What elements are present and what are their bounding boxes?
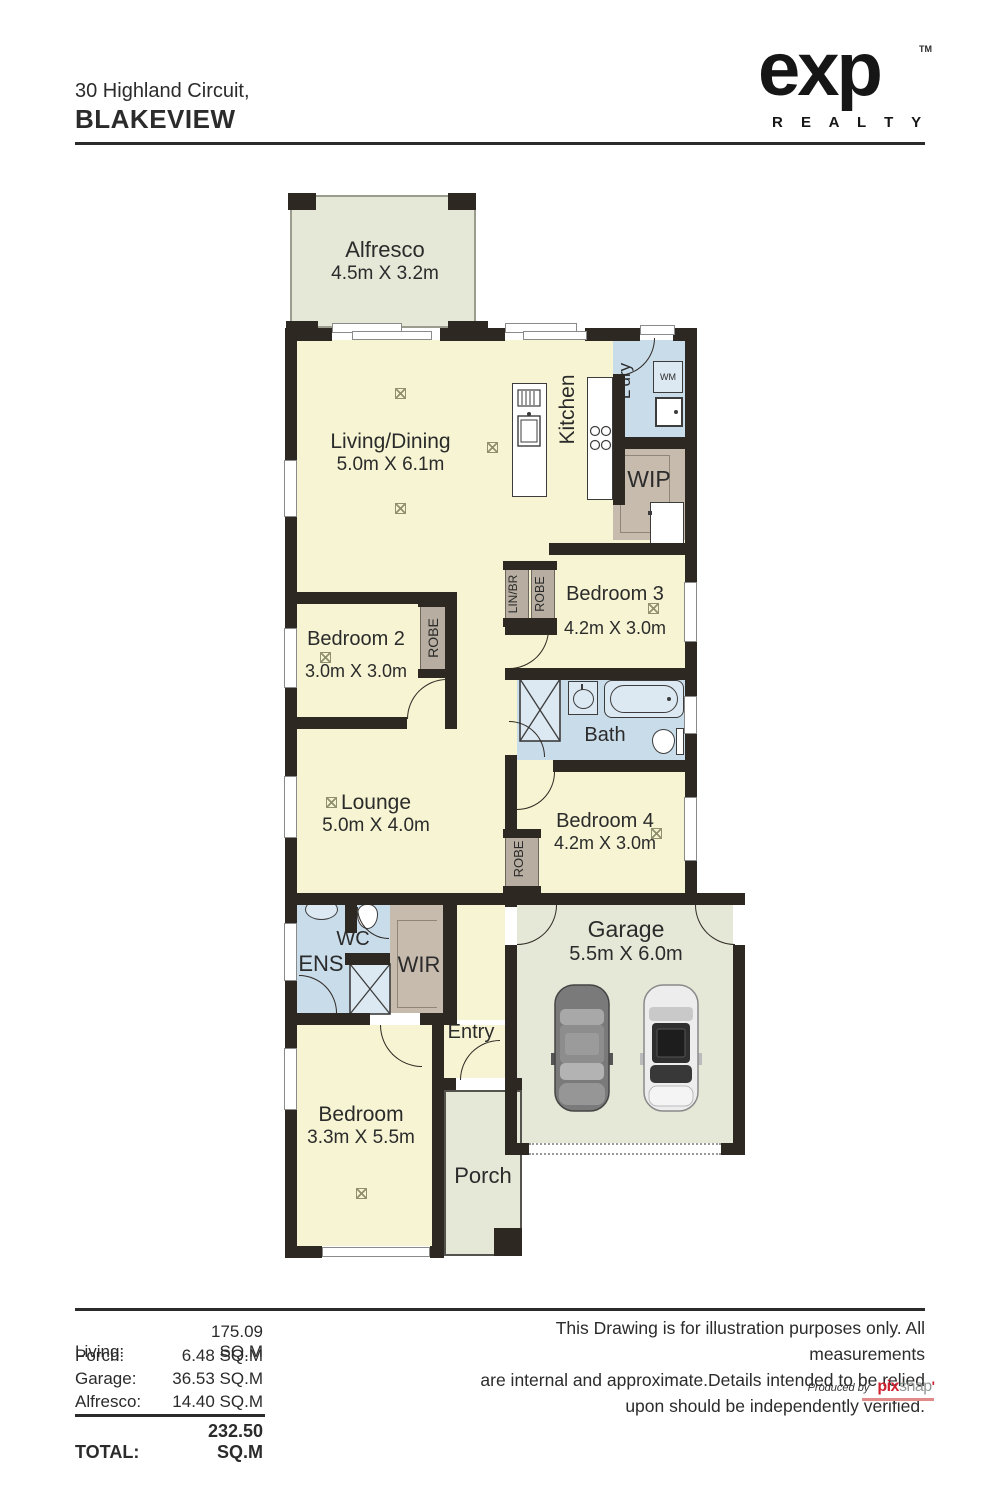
wall-segment xyxy=(505,895,517,907)
wall-segment xyxy=(285,688,297,776)
area-row: Porch:6.48 SQ.M xyxy=(75,1346,265,1366)
window xyxy=(284,923,297,981)
light-symbol xyxy=(395,388,406,399)
wall-segment xyxy=(505,755,517,772)
wall-segment xyxy=(447,717,457,729)
window xyxy=(322,1247,430,1257)
ens-label: ENS xyxy=(296,951,346,977)
light-symbol xyxy=(326,797,337,808)
room-dims: 4.5m X 3.2m xyxy=(300,263,470,285)
window xyxy=(523,331,587,340)
cistern xyxy=(676,728,684,755)
alfresco-label: Alfresco 4.5m X 3.2m xyxy=(300,237,470,285)
total-row: TOTAL:232.50 SQ.M xyxy=(75,1421,265,1463)
tap-dot xyxy=(674,410,678,414)
alfresco-post xyxy=(448,193,476,210)
room-dims: 4.2m X 3.0m xyxy=(548,833,662,854)
linen-label: LIN/BR xyxy=(506,570,520,618)
light-symbol xyxy=(487,442,498,453)
floorplan-sheet: 30 Highland Circuit, BLAKEVIEW exp TM R … xyxy=(0,0,1000,1500)
disclaimer-line: upon should be independently verified. xyxy=(450,1393,925,1419)
room-dims: 4.2m X 3.0m xyxy=(556,618,674,639)
wall-segment xyxy=(505,772,517,829)
window xyxy=(284,460,297,517)
porch-post xyxy=(494,1228,522,1256)
wall-segment xyxy=(613,437,697,449)
window xyxy=(352,331,432,340)
pixsnap-tagline-bar xyxy=(862,1398,934,1401)
light-symbol xyxy=(395,503,406,514)
wall-segment xyxy=(733,945,745,1155)
pixsnap-logo-mark: ' xyxy=(932,1378,935,1394)
garage-door-opening xyxy=(529,1143,721,1155)
hall-robe-label: ROBE xyxy=(533,570,547,618)
wall-segment xyxy=(430,1246,444,1258)
wall-segment xyxy=(448,321,488,339)
pixsnap-logo-pix: pix xyxy=(877,1378,899,1395)
porch-label: Porch xyxy=(450,1163,516,1189)
wall-segment xyxy=(721,1143,745,1155)
wm-label: WM xyxy=(660,372,676,382)
wall-segment xyxy=(285,1246,322,1258)
light-symbol xyxy=(320,652,331,663)
wall-segment xyxy=(733,893,745,905)
wall-segment xyxy=(443,893,457,1013)
bath-label: Bath xyxy=(578,724,632,747)
window xyxy=(284,1048,297,1110)
bedroom4-label: Bedroom 4 4.2m X 3.0m xyxy=(548,810,662,854)
window xyxy=(684,797,697,861)
wall-segment xyxy=(553,760,697,772)
wall-segment xyxy=(345,953,390,965)
total-label: TOTAL: xyxy=(75,1442,163,1463)
room-dims: 5.0m X 4.0m xyxy=(316,815,436,837)
window xyxy=(284,776,297,838)
room-dims: 5.5m X 6.0m xyxy=(566,943,686,966)
bedroom4-robe-label: ROBE xyxy=(511,832,526,886)
room-dims: 5.0m X 6.1m xyxy=(308,454,473,476)
wall-segment xyxy=(505,668,697,680)
drain-dot xyxy=(667,697,671,701)
fridge-handle xyxy=(648,511,652,515)
floor-plan: WM xyxy=(0,0,1000,1300)
window xyxy=(684,696,697,734)
produced-by-text: Produced by xyxy=(808,1382,870,1394)
cooktop-icon xyxy=(589,424,612,454)
garage-label: Garage 5.5m X 6.0m xyxy=(566,916,686,966)
sink-icon xyxy=(513,384,545,495)
room-name: Bedroom xyxy=(303,1103,419,1127)
room-name: Living/Dining xyxy=(308,430,473,454)
wir-label: WIR xyxy=(394,952,444,978)
area-label: Garage: xyxy=(75,1369,163,1389)
wall-segment xyxy=(517,893,733,905)
car-dark xyxy=(551,983,613,1113)
area-value: 6.48 SQ.M xyxy=(163,1346,263,1366)
hall-floor xyxy=(457,905,505,1020)
room-name: Bedroom 4 xyxy=(548,810,662,833)
bowl xyxy=(652,729,675,754)
laundry-trough xyxy=(655,397,683,427)
living-label: Living/Dining 5.0m X 6.1m xyxy=(308,430,473,476)
wall-segment xyxy=(613,449,625,505)
light-symbol xyxy=(648,603,659,614)
light-symbol xyxy=(651,828,662,839)
wall-segment xyxy=(505,1143,529,1155)
wall-segment xyxy=(285,592,457,604)
area-value: 36.53 SQ.M xyxy=(163,1369,263,1389)
wall-segment xyxy=(505,945,517,1143)
wall-segment xyxy=(444,1078,456,1090)
room-name: Garage xyxy=(566,916,686,943)
basin xyxy=(573,689,594,709)
room-name: Bedroom 2 xyxy=(300,628,412,651)
bath-toilet xyxy=(650,726,684,758)
car-light xyxy=(640,983,702,1113)
room-dims: 3.3m X 5.5m xyxy=(303,1127,419,1149)
ens-shower-icon xyxy=(349,963,391,1015)
bedroom2-label: Bedroom 2 3.0m X 3.0m xyxy=(300,628,412,682)
total-value: 232.50 SQ.M xyxy=(163,1421,263,1463)
window xyxy=(684,582,697,642)
robe-cap xyxy=(503,561,557,570)
kitchen-island xyxy=(512,383,547,497)
disclaimer-line: This Drawing is for illustration purpose… xyxy=(450,1315,925,1367)
wall-segment xyxy=(549,543,697,555)
wall-segment xyxy=(285,838,297,923)
wall-segment xyxy=(432,1020,444,1258)
area-row: Garage:36.53 SQ.M xyxy=(75,1369,265,1389)
area-label: Porch: xyxy=(75,1346,163,1366)
wall-segment xyxy=(285,1110,297,1258)
wall-segment xyxy=(285,717,407,729)
wall-segment xyxy=(285,893,517,905)
wall-segment xyxy=(613,374,625,437)
area-value: 14.40 SQ.M xyxy=(163,1392,263,1412)
kitchen-label: Kitchen xyxy=(556,337,580,482)
window xyxy=(284,628,297,688)
bath-vanity xyxy=(568,681,598,715)
washing-machine: WM xyxy=(653,361,683,393)
producer-credit: Produced bypixsnap' xyxy=(640,1378,935,1396)
area-row: Alfresco:14.40 SQ.M xyxy=(75,1392,265,1412)
bedroom2-robe-label: ROBE xyxy=(425,602,441,674)
window xyxy=(640,325,675,335)
tap xyxy=(581,684,583,690)
alfresco-post xyxy=(288,193,316,210)
room-dims: 3.0m X 3.0m xyxy=(300,661,412,682)
room-name: Alfresco xyxy=(300,237,470,263)
wall-segment xyxy=(285,1013,370,1025)
pantry-label: WIP xyxy=(618,466,680,493)
disclaimer: This Drawing is for illustration purpose… xyxy=(450,1315,925,1419)
wall-segment xyxy=(285,517,297,628)
total-divider xyxy=(75,1414,265,1417)
pixsnap-logo-snap: snap xyxy=(899,1378,932,1395)
bathtub xyxy=(604,680,684,718)
fridge xyxy=(650,502,684,544)
footer-divider xyxy=(75,1308,925,1311)
area-label: Alfresco: xyxy=(75,1392,163,1412)
front-bedroom-label: Bedroom 3.3m X 5.5m xyxy=(303,1103,419,1149)
wall-segment xyxy=(285,328,297,460)
wall-segment xyxy=(345,893,357,933)
light-symbol xyxy=(356,1188,367,1199)
